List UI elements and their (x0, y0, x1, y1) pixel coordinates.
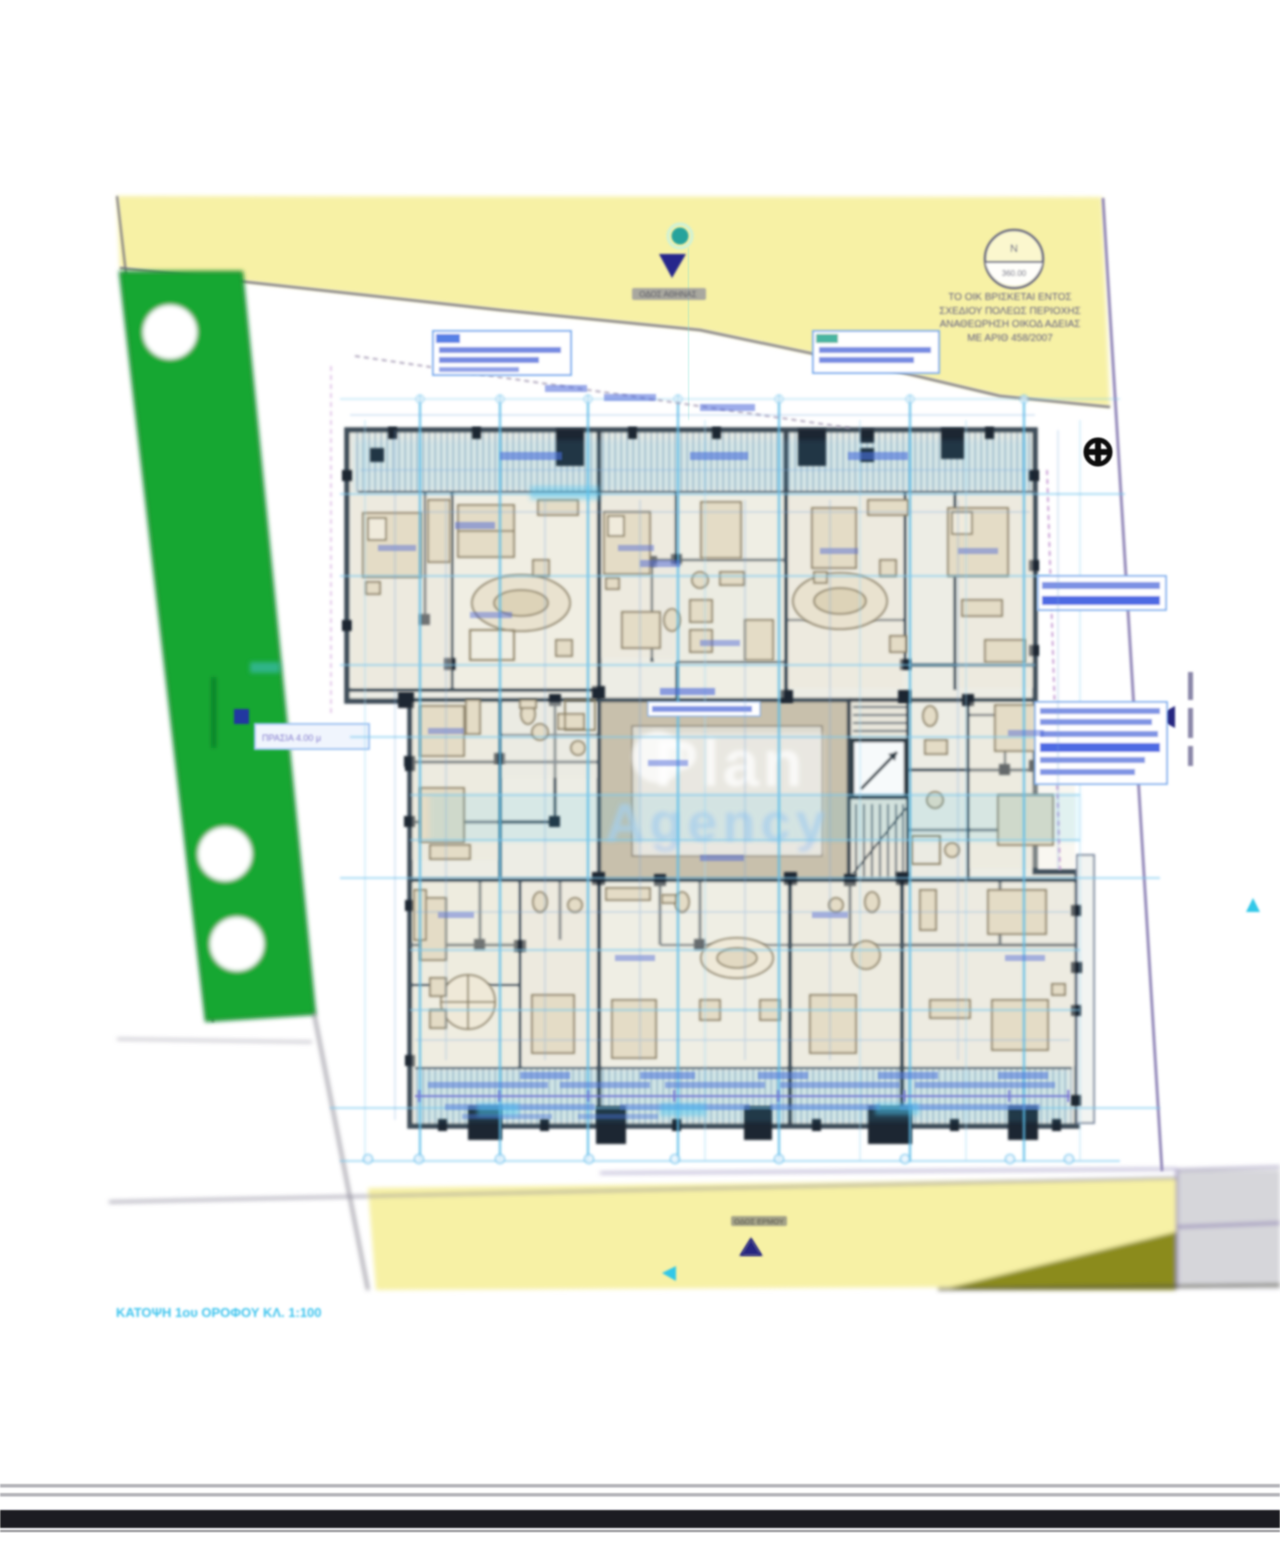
svg-text:ΠΡΑΣΙΑ 4.00 μ: ΠΡΑΣΙΑ 4.00 μ (262, 733, 321, 743)
svg-text:ΑΝΑΘΕΩΡΗΣΗ ΟΙΚΟΔ ΑΔΕΙΑΣ: ΑΝΑΘΕΩΡΗΣΗ ΟΙΚΟΔ ΑΔΕΙΑΣ (940, 319, 1081, 330)
svg-text:360.00: 360.00 (1002, 269, 1027, 278)
svg-text:ΟΔΟΣ ΑΘΗΝΑΣ: ΟΔΟΣ ΑΘΗΝΑΣ (639, 290, 696, 299)
svg-text:ΣΧΕΔΙΟΥ ΠΟΛΕΩΣ ΠΕΡΙΟΧΗΣ: ΣΧΕΔΙΟΥ ΠΟΛΕΩΣ ΠΕΡΙΟΧΗΣ (939, 306, 1081, 317)
svg-text:ΜΕ ΑΡΙΘ 458/2007: ΜΕ ΑΡΙΘ 458/2007 (967, 333, 1053, 344)
svg-text:ΤΟ ΟΙΚ ΒΡΙΣΚΕΤΑΙ ΕΝΤΟΣ: ΤΟ ΟΙΚ ΒΡΙΣΚΕΤΑΙ ΕΝΤΟΣ (948, 292, 1072, 303)
svg-text:ΟΔΟΣ ΕΡΜΟΥ: ΟΔΟΣ ΕΡΜΟΥ (734, 1217, 784, 1226)
svg-text:ΚΑΤΟΨΗ 1ου ΟΡΟΦΟΥ ΚΛ. 1:100: ΚΑΤΟΨΗ 1ου ΟΡΟΦΟΥ ΚΛ. 1:100 (116, 1305, 322, 1320)
svg-text:N: N (1010, 243, 1018, 255)
